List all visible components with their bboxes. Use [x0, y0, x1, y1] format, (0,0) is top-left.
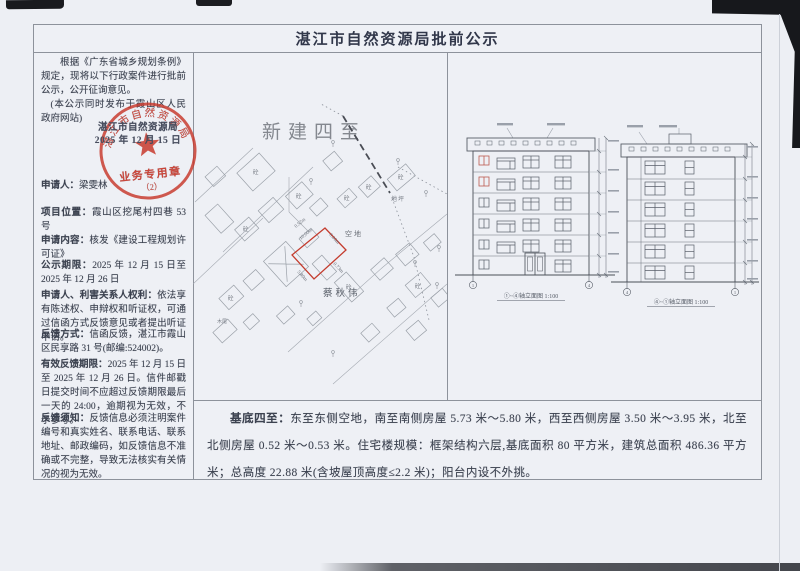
floor-lines: [627, 179, 735, 263]
concrete-mark: 砼: [253, 168, 259, 176]
annotation-smudge: [627, 125, 643, 127]
page-title: 湛江市自然资源局批前公示: [295, 28, 499, 49]
facade-windows: [645, 161, 694, 279]
dashed-line-bold: [343, 116, 390, 193]
axis-number: 1: [472, 283, 474, 288]
concrete-mark: 砼: [243, 225, 249, 233]
scan-artifact-top-left: [6, 0, 64, 9]
annotation-leaders: [507, 128, 553, 138]
concrete-mark: 砼: [415, 282, 421, 290]
field-application-content: 申请内容：核发《建设工程规划许可证》: [34, 234, 193, 262]
concrete-mark: 砼: [366, 183, 372, 191]
elevation-right: 4 1 ④~①轴立面图 1:100: [611, 125, 759, 307]
axis-number: 4: [588, 283, 591, 288]
axis-number: 1: [734, 290, 736, 295]
official-seal: 湛江市自然资源局 业务专用章 （2）: [91, 94, 205, 208]
site-plan-drawing: 新建四至: [193, 52, 447, 400]
notice-text-column: 根据《广东省城乡规划条例》规定，现将以下行政案件进行批前公示，公开征询意见。 (…: [34, 52, 194, 479]
roof-vents: [475, 141, 576, 145]
dimension-lines: [597, 136, 608, 278]
site-plan-buildings: [205, 151, 447, 343]
field-label: 公示期限：: [41, 261, 92, 271]
paper-edge-line: [779, 14, 780, 571]
issue-date-line: 2025 年 12 月 15 日: [74, 135, 202, 148]
axis-markers: [469, 275, 592, 289]
scanned-notice-page: 湛江市自然资源局批前公示 根据《广东省城乡规划条例》规定，现将以下行政案件进行批…: [0, 0, 800, 571]
annotation-smudge: [547, 123, 565, 125]
dimension-text-smudges: [608, 140, 619, 273]
seal-number: （2）: [141, 181, 163, 193]
site-summary-text: 基底四至：东至东侧空地，南至南侧房屋 5.73 米～5.80 米，西至西侧房屋 …: [193, 401, 761, 487]
roof-vents: [629, 147, 730, 151]
field-feedback-notes: 反馈须知：反馈信息必须注明案件编号和真实姓名、联系电话、联系地址、邮政编码，如反…: [34, 412, 193, 482]
axis-markers: [623, 282, 738, 296]
entrance-door: [525, 253, 545, 275]
elevation-left-caption: ①~④轴立面图 1:100: [504, 292, 558, 300]
annotation-smudge: [497, 123, 513, 125]
issuer-org-line: 湛江市自然资源局: [74, 122, 202, 135]
concrete-mark: 砼: [296, 192, 302, 200]
intro-paragraph-1: 根据《广东省城乡规划条例》规定，现将以下行政案件进行批前公示，公开征询意见。: [41, 56, 186, 98]
annotation-smudge: [659, 125, 677, 127]
elevation-right-caption: ④~①轴立面图 1:100: [654, 298, 708, 306]
title-row: 湛江市自然资源局批前公示: [34, 25, 761, 53]
field-label: 反馈方式：: [41, 330, 89, 340]
field-label: 项目位置：: [41, 208, 92, 218]
concrete-mark: 砼: [344, 194, 350, 202]
annotation-leaders: [639, 128, 679, 144]
dimension-lines: [743, 142, 754, 285]
issuer-and-date: 湛江市自然资源局 2025 年 12 月 15 日: [74, 122, 202, 148]
scan-artifact-top-center: [196, 0, 232, 6]
ground-level-label: 地坪: [391, 195, 405, 203]
concrete-mark: 砼: [398, 173, 404, 181]
axis-number: 4: [626, 290, 629, 295]
elevations-cell: 1 4 ①~④轴立面图 1:100: [447, 52, 761, 400]
parcel-dimensions: 10.00m 8.00m 0.73m 5.80m 0.52m: [294, 218, 344, 283]
roof-slab: [621, 144, 747, 157]
site-summary-label: 基底四至：: [230, 413, 290, 425]
floor-line-extensions: [735, 157, 752, 263]
concrete-mark: 砼: [346, 283, 352, 291]
site-plan-cell: 新建四至: [193, 52, 448, 400]
scan-artifact-bottom: [320, 563, 800, 571]
facade-outline: [473, 151, 589, 275]
concrete-marks: 砼 砼 砼 砼 砼 砼 砼 砼 砼: [228, 168, 421, 302]
floor-line-extensions: [589, 151, 606, 256]
site-plan-heading: 新建四至: [262, 121, 366, 143]
dimension-text-smudges: [747, 146, 758, 280]
field-project-location: 项目位置：霞山区挖尾村四巷 53 号: [34, 206, 193, 234]
field-notice-period: 公示期限：2025 年 12 月 15 日至 2025 年 12 月 26 日: [34, 259, 193, 287]
elevation-drawings: 1 4 ①~④轴立面图 1:100: [447, 52, 761, 400]
field-label: 有效反馈期限：: [41, 360, 108, 370]
dim-label: 8.00m: [328, 233, 340, 246]
field-feedback-method: 反馈方式：信函反馈，湛江市霞山区民享路 31 号(邮编:524002)。: [34, 328, 193, 356]
field-label: 申请内容：: [41, 236, 89, 246]
concrete-mark: 砼: [228, 294, 234, 302]
vacant-land-label: 空地: [345, 229, 363, 238]
field-label: 申请人、利害关系人权利：: [41, 291, 157, 301]
roof-bulkhead: [669, 134, 691, 144]
site-plan-lanes: [193, 148, 447, 384]
field-label: 申请人：: [41, 181, 79, 191]
notice-table: 湛江市自然资源局批前公示 根据《广东省城乡规划条例》规定，现将以下行政案件进行批…: [33, 24, 762, 480]
site-summary-cell: 基底四至：东至东侧空地，南至南侧房屋 5.73 米～5.80 米，西至西侧房屋 …: [193, 400, 761, 480]
elevation-left: 1 4 ①~④轴立面图 1:100: [455, 123, 619, 301]
timber-house-label: 木尾: [217, 318, 227, 325]
owner-name-label: 蔡秋伟: [323, 287, 361, 299]
field-label: 反馈须知：: [41, 414, 89, 424]
